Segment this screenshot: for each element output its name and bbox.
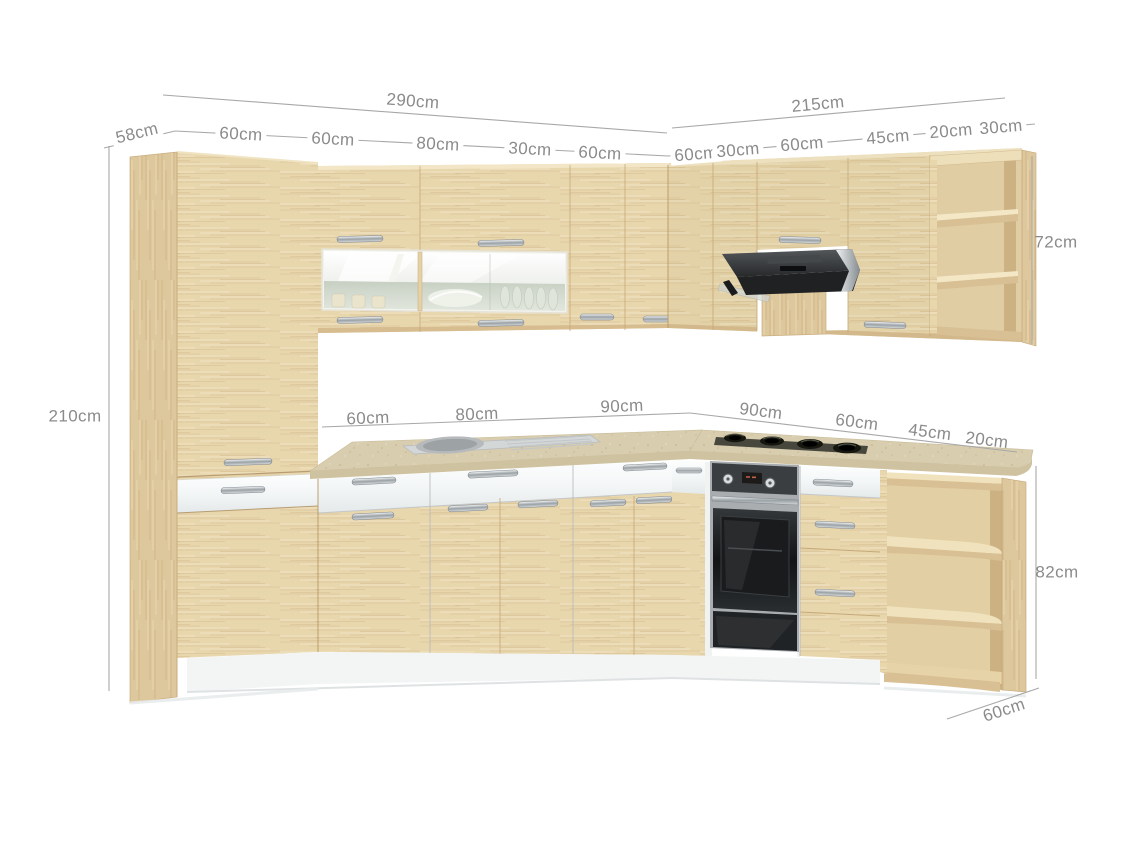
- base-corner-shelf: [880, 470, 1026, 692]
- tall-cabinet-upper-lower-doors: [177, 152, 318, 658]
- dim-label-counter-seg: 45cm: [908, 421, 953, 443]
- wall-shelf-stile: [930, 160, 937, 333]
- dim-label-height-wall: 72cm: [1034, 234, 1077, 251]
- dim-label-total-right: 215cm: [791, 93, 845, 115]
- base-shelf-stile: [880, 470, 887, 674]
- cabinet-handle: [478, 319, 524, 326]
- dim-label-counter-seg: 20cm: [965, 429, 1010, 451]
- kitchen-dimension-diagram: 58cm 290cm 215cm 60cm 60cm 80cm 30cm 60c…: [0, 0, 1126, 845]
- base-cabinets-left: [318, 460, 672, 655]
- tall-cabinet: [130, 152, 318, 703]
- dim-label-top-seg: 60cm: [215, 123, 267, 145]
- glass-mullion: [418, 252, 422, 311]
- dim-label-height-base: 82cm: [1035, 564, 1078, 581]
- corner-unit-drawer: [672, 460, 705, 494]
- dim-label-counter-seg: 80cm: [455, 405, 499, 424]
- cabinet-handle: [779, 236, 821, 243]
- dim-label-counter-seg: 60cm: [346, 409, 390, 428]
- dim-label-top-seg: 60cm: [574, 142, 626, 164]
- corner-unit-door: [672, 492, 705, 656]
- dim-label-counter-seg: 90cm: [600, 397, 644, 416]
- wall-corner-shelf: [930, 150, 1036, 346]
- dim-label-top-seg: 60cm: [307, 128, 359, 150]
- cabinet-handle: [580, 314, 614, 320]
- wall-cabinets-right: [668, 148, 1036, 346]
- cabinet-handle: [337, 235, 383, 242]
- base-shelf-interior: [886, 474, 1002, 690]
- hood-controls: [780, 266, 806, 271]
- dim-label-counter-seg: 90cm: [739, 400, 784, 422]
- wall-shelf-inner-side: [1004, 153, 1016, 338]
- cabinet-handle: [221, 486, 265, 494]
- dim-label-top-seg: 80cm: [412, 133, 464, 155]
- base-shelf-side-panel: [1002, 478, 1026, 692]
- drawer-fronts-wood: [800, 494, 880, 660]
- wall-cabinets-left: [318, 163, 685, 333]
- drawer-handle: [676, 468, 702, 473]
- dim-label-counter-seg: 60cm: [835, 411, 880, 433]
- dim-label-top-seg: 30cm: [504, 138, 556, 160]
- base-shelf-inner-side: [990, 479, 1002, 690]
- cabinet-handle: [478, 239, 524, 246]
- wall-cabinet-glass-band: [322, 249, 567, 313]
- cabinet-handle: [864, 321, 906, 328]
- cabinet-handle: [337, 316, 383, 323]
- built-in-oven: [705, 461, 800, 657]
- dim-label-total-left: 290cm: [386, 91, 440, 112]
- drawer-unit-45: [800, 466, 880, 660]
- dim-label-height-tall: 210cm: [48, 408, 101, 425]
- plinth-tall: [187, 652, 318, 692]
- tall-cabinet-side-panel: [130, 152, 177, 703]
